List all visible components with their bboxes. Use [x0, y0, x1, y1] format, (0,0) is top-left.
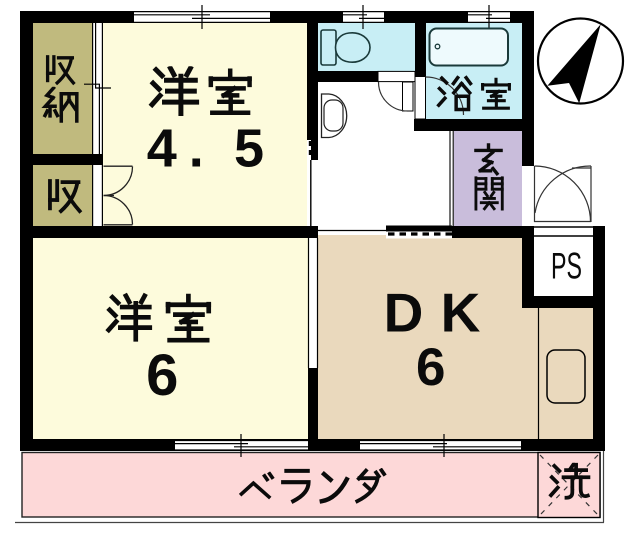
svg-text:6: 6: [416, 338, 445, 397]
svg-text:.: .: [189, 119, 204, 179]
svg-text:PS: PS: [551, 246, 582, 287]
svg-text:4: 4: [147, 119, 177, 179]
svg-text:5: 5: [234, 119, 264, 179]
svg-text:K: K: [441, 282, 481, 344]
svg-text:D: D: [384, 282, 424, 344]
svg-text:6: 6: [146, 343, 178, 408]
